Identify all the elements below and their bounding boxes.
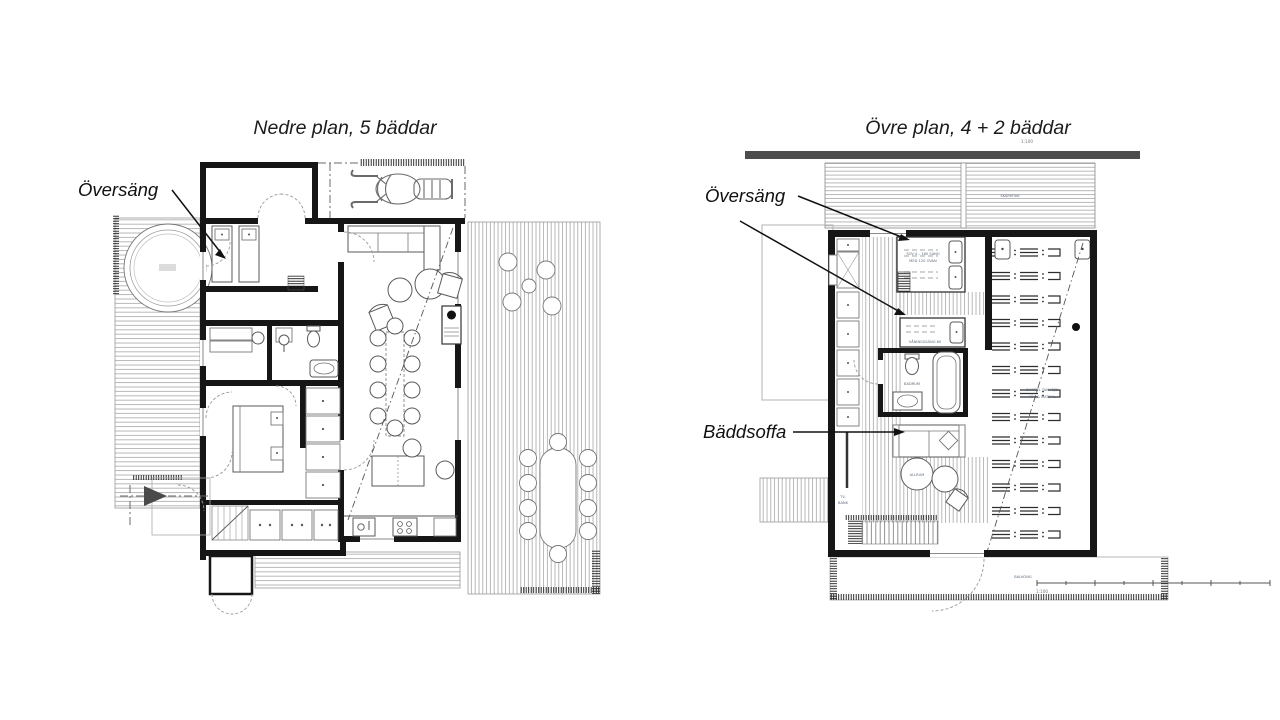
stove — [393, 518, 417, 536]
left-deck-hot-tub-terrace — [113, 215, 212, 508]
upper-plan-scale: 1:100 — [1021, 139, 1033, 144]
kitchen — [212, 506, 458, 540]
pantry-stairs — [212, 506, 248, 540]
living-room — [348, 226, 463, 486]
wardrobe-closets — [306, 388, 340, 498]
loft-bed-2: VÅNINGSSÄNG 80 — [900, 318, 965, 347]
loft-ladder — [288, 276, 304, 290]
badrum-label: BADRUM — [904, 382, 920, 386]
fireplace — [442, 306, 461, 344]
work-table — [372, 439, 454, 486]
wc-room — [276, 328, 292, 352]
lower-plan-title: Nedre plan, 5 bäddar — [253, 117, 438, 139]
scale-bottom-label: 1:100 — [1036, 589, 1048, 594]
snowmobile-icon — [352, 170, 452, 208]
baddsoffa-label: Bäddsoffa — [703, 421, 786, 442]
deck-edge-hatch — [113, 215, 119, 295]
bedroom — [233, 406, 283, 472]
oversang-label-right: Översäng — [705, 185, 786, 206]
sauna — [210, 328, 264, 352]
storage-room — [210, 556, 252, 614]
counter-unit — [434, 518, 456, 536]
sofa — [348, 226, 440, 270]
oversang-label-left: Översäng — [78, 179, 159, 200]
roof-ridge-bar — [745, 151, 1140, 159]
upper-floor-plan: SKÄRMTAK BALKONG 1:100 — [690, 100, 1280, 620]
loft-bed-1: SOV 4 – 160 SÄNG MED 120 OVAN — [897, 237, 965, 292]
bed1-note-2: MED 120 OVAN — [909, 259, 937, 263]
exterior-deck — [760, 478, 828, 522]
double-height-void: DUBBEL TAKHÖJD KÖK & MATSAL — [987, 237, 1090, 552]
hot-tub — [124, 224, 212, 312]
carport — [318, 159, 465, 218]
sofa-bed — [893, 425, 965, 457]
dining-table-chairs — [370, 318, 420, 436]
loft-steps — [898, 272, 910, 292]
allrum-label: ALLRUM — [910, 473, 925, 477]
skarmtak-canopy: SKÄRMTAK — [825, 163, 1095, 228]
lower-floor-outline — [762, 225, 833, 400]
tv-bench-label-2: BÄNK — [838, 500, 849, 505]
tv-bench: TV- BÄNK — [838, 432, 849, 505]
skarmtak-label: SKÄRMTAK — [1000, 193, 1020, 198]
balkong-label: BALKONG — [1014, 575, 1032, 579]
bunk-bed-room — [212, 226, 304, 290]
tv-bench-label-1: TV- — [839, 495, 846, 499]
right-deck-terrace — [468, 222, 600, 594]
toilet — [906, 358, 919, 375]
bed1-note-1: SOV 4 – 160 SÄNG — [906, 251, 940, 256]
bathroom — [307, 326, 338, 377]
bed2-note: VÅNINGSSÄNG 80 — [909, 339, 942, 344]
chimney-flue — [1072, 323, 1080, 331]
floorplan-page: Nedre plan, 5 bäddar Översäng — [0, 0, 1280, 720]
double-height-label-1: DUBBEL TAKHÖJD — [1026, 387, 1058, 392]
staircase — [845, 515, 938, 544]
coffee-table — [388, 278, 412, 302]
washbasin-niche — [829, 252, 859, 288]
bottom-deck — [255, 552, 460, 588]
balcony: BALKONG 1:100 — [830, 557, 1270, 611]
double-height-label-2: KÖK & MATSAL — [1029, 394, 1056, 399]
lower-floor-plan: Nedre plan, 5 bäddar Översäng — [60, 100, 640, 620]
upper-plan-title: Övre plan, 4 + 2 bäddar — [865, 117, 1072, 139]
carport-edge-hatch — [360, 159, 465, 166]
